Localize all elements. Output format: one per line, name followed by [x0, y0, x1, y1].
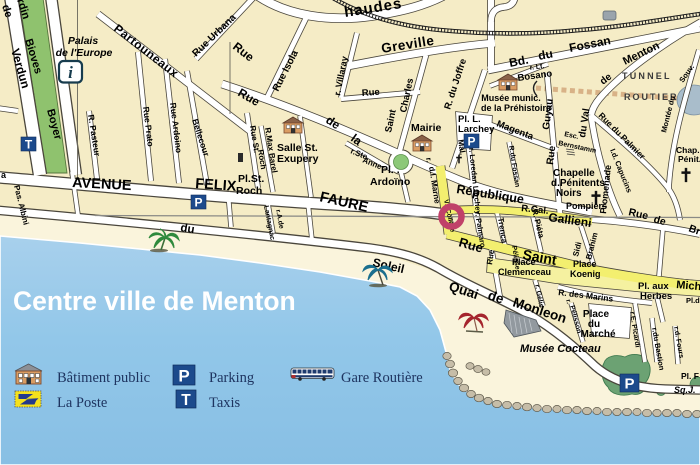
svg-text:Ardoïno: Ardoïno [370, 176, 410, 188]
svg-text:Larchey: Larchey [458, 124, 495, 135]
svg-text:P: P [178, 367, 189, 386]
svg-text:La Poste: La Poste [57, 395, 107, 411]
svg-text:Parking: Parking [209, 370, 254, 386]
svg-text:T: T [25, 138, 33, 152]
svg-text:du: du [537, 46, 554, 63]
svg-text:Herbes: Herbes [640, 291, 672, 302]
svg-text:Pl. .: Pl. . [381, 164, 400, 176]
svg-text:Pl.du: Pl.du [686, 296, 700, 305]
svg-text:Marché: Marché [580, 329, 615, 340]
svg-text:Taxis: Taxis [209, 395, 241, 411]
svg-text:Rue: Rue [361, 87, 380, 99]
svg-text:T: T [181, 392, 191, 409]
svg-text:Clemenceau: Clemenceau [498, 267, 551, 277]
svg-text:AVENUE: AVENUE [72, 175, 132, 194]
svg-text:Noirs: Noirs [556, 188, 582, 199]
svg-text:Rue: Rue [545, 145, 558, 166]
svg-text:Palais: Palais [68, 35, 99, 47]
svg-text:P: P [624, 376, 634, 393]
svg-text:Bâtiment public: Bâtiment public [57, 370, 150, 386]
svg-text:Musée munic.: Musée munic. [481, 93, 541, 103]
svg-text:TUNNEL: TUNNEL [622, 71, 672, 81]
svg-text:Gare Routière: Gare Routière [341, 370, 423, 386]
svg-text:Pl.St.: Pl.St. [238, 173, 264, 185]
svg-text:de l'Europe: de l'Europe [56, 47, 113, 59]
svg-text:Pompiers: Pompiers [566, 201, 607, 211]
svg-text:Sq.J.: Sq.J. [674, 385, 696, 395]
svg-text:Centre ville de Menton: Centre ville de Menton [13, 286, 296, 316]
svg-text:Pénit.: Pénit. [678, 154, 700, 164]
svg-text:Roch: Roch [236, 185, 262, 197]
svg-text:Mairie: Mairie [411, 122, 442, 134]
svg-text:Koenig: Koenig [570, 269, 601, 279]
svg-text:de la Préhistoire: de la Préhistoire [481, 103, 551, 113]
svg-text:Musée Cocteau: Musée Cocteau [520, 343, 601, 355]
svg-text:du: du [180, 222, 196, 236]
svg-text:FELIX: FELIX [195, 176, 237, 195]
svg-text:i: i [68, 63, 73, 82]
svg-text:Exupery: Exupery [277, 153, 319, 165]
svg-text:Place: Place [573, 259, 597, 269]
svg-text:Pl. F: Pl. F [681, 371, 699, 381]
